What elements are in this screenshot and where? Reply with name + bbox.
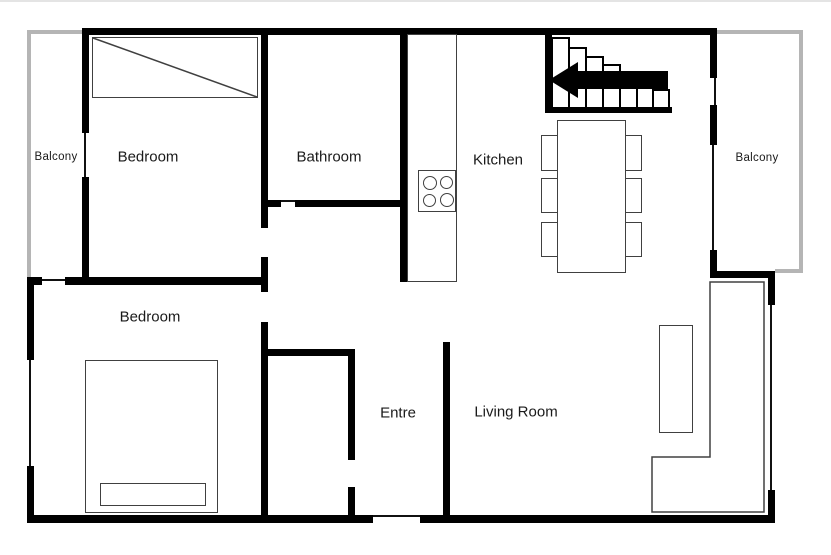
stairs-side-wall [545, 33, 552, 113]
label-bathroom: Bathroom [296, 149, 361, 166]
sofa-l-shaped [652, 282, 764, 512]
label-balcony-left: Balcony [34, 151, 77, 163]
label-kitchen: Kitchen [473, 152, 523, 169]
label-entre: Entre [380, 405, 416, 422]
label-bedroom-bottom: Bedroom [120, 309, 181, 326]
floor-plan: Balcony Bedroom Bathroom Kitchen Balcony… [0, 0, 831, 555]
label-bedroom-top: Bedroom [118, 149, 179, 166]
wardrobe-diagonal [93, 38, 257, 97]
plan-overlay [0, 0, 831, 555]
stair-step [653, 90, 669, 108]
label-living-room: Living Room [474, 404, 557, 421]
label-balcony-right: Balcony [735, 152, 778, 164]
staircase [545, 33, 672, 113]
